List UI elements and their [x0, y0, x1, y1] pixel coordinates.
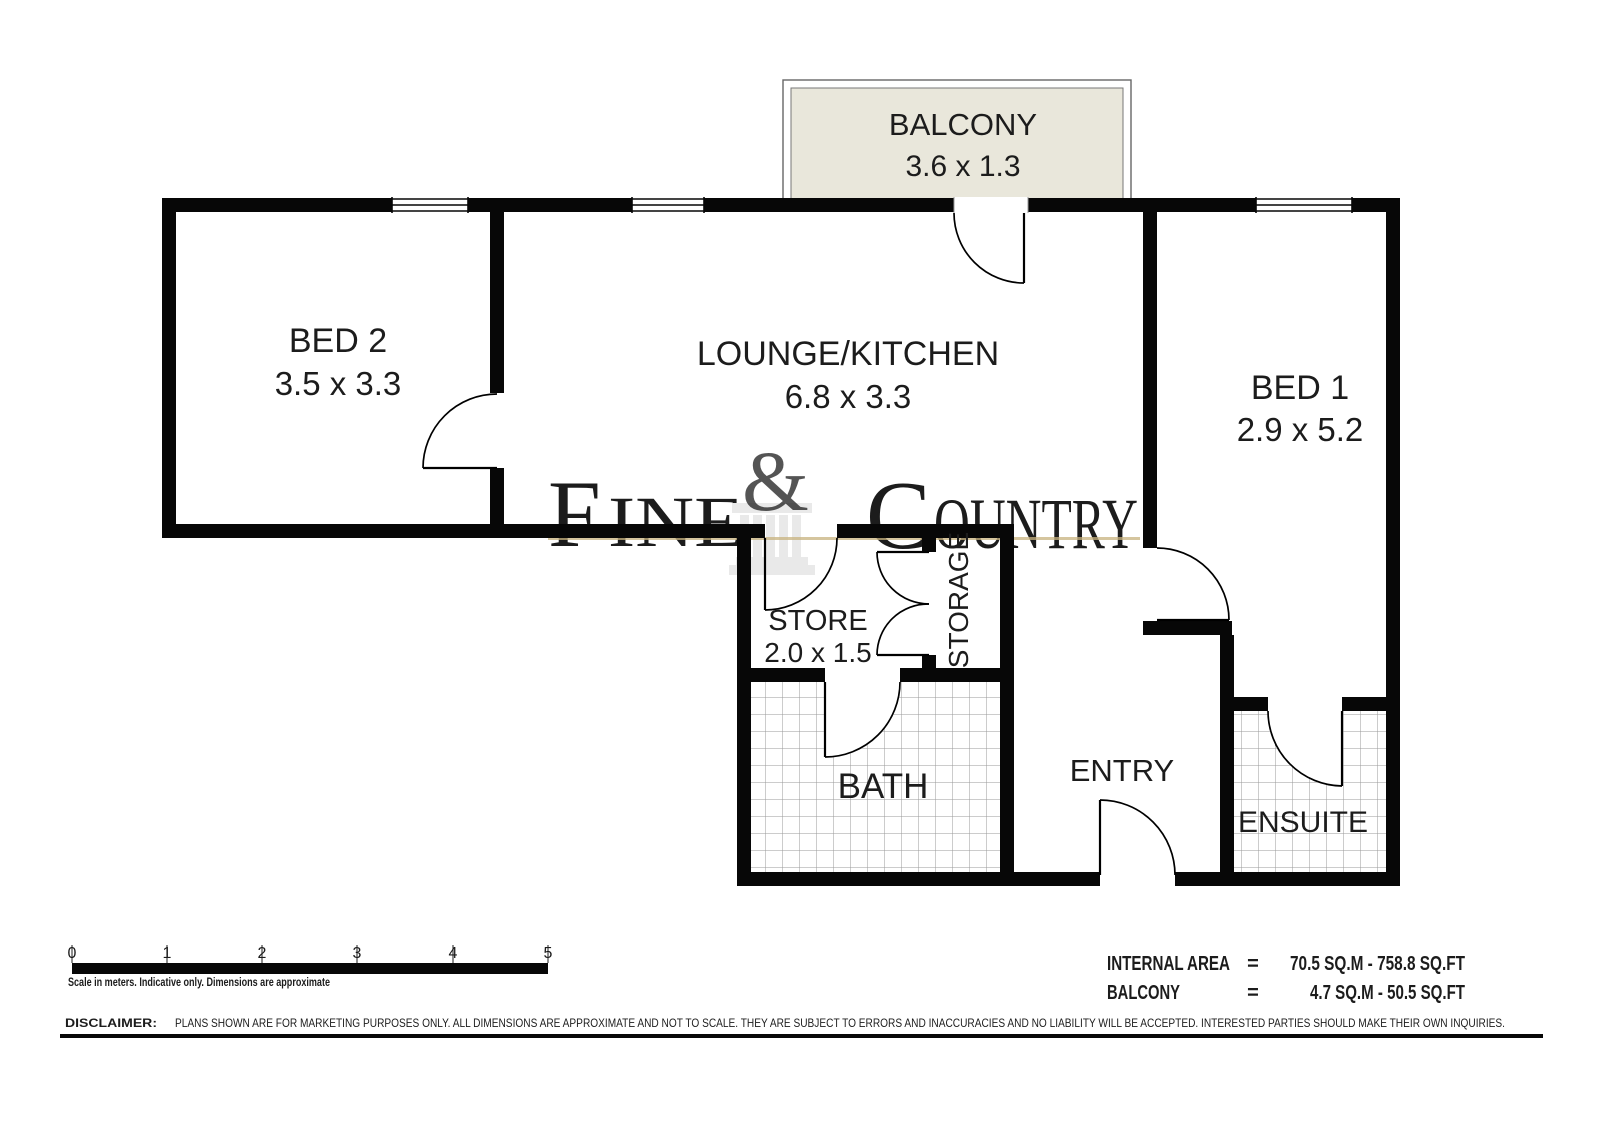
floorplan-svg: BALCONY 3.6 x 1.3 F INE C OUNTRY & — [0, 0, 1600, 1131]
entry-label: ENTRY — [1070, 753, 1175, 788]
balcony-area: BALCONY 3.6 x 1.3 — [783, 80, 1131, 206]
ensuite-label: ENSUITE — [1238, 806, 1368, 839]
store-dims: 2.0 x 1.5 — [764, 637, 871, 668]
balcony-area-eq: = — [1247, 982, 1259, 1004]
bed1-window — [1256, 197, 1352, 213]
scale-caption: Scale in meters. Indicative only. Dimens… — [68, 977, 330, 989]
scale-tick-3: 3 — [353, 945, 362, 962]
bed1-label: BED 1 — [1251, 369, 1349, 407]
scale-tick-1: 1 — [163, 945, 172, 962]
internal-area-label: INTERNAL AREA — [1107, 953, 1230, 975]
scale-bar-rule — [72, 963, 548, 974]
internal-area-value: 70.5 SQ.M - 758.8 SQ.FT — [1290, 953, 1465, 975]
scale-tick-0: 0 — [68, 945, 77, 962]
balcony-dims: 3.6 x 1.3 — [905, 150, 1020, 183]
lounge-dims: 6.8 x 3.3 — [785, 378, 912, 415]
watermark-fine-rest: INE — [608, 482, 744, 562]
bed2-label: BED 2 — [289, 322, 387, 360]
footer-rule — [60, 1034, 1543, 1038]
bath-label: BATH — [838, 767, 929, 806]
store-label: STORE — [768, 605, 867, 637]
balcony-area-label: BALCONY — [1107, 982, 1180, 1004]
scale-tick-2: 2 — [258, 945, 267, 962]
bed1-dims: 2.9 x 5.2 — [1237, 411, 1364, 448]
bed2-window — [392, 197, 468, 213]
disclaimer: DISCLAIMER: PLANS SHOWN ARE FOR MARKETIN… — [60, 1016, 1543, 1038]
balcony-label: BALCONY — [889, 107, 1037, 142]
watermark-fine-initial: F — [548, 461, 601, 567]
scale-tick-5: 5 — [544, 945, 553, 962]
internal-area-eq: = — [1247, 953, 1259, 975]
lounge-window — [632, 197, 704, 213]
scale-tick-4: 4 — [449, 945, 458, 962]
bed2-dims: 3.5 x 3.3 — [275, 365, 402, 402]
balcony-door-opening — [954, 197, 1028, 213]
floorplan-page: BALCONY 3.6 x 1.3 F INE C OUNTRY & — [0, 0, 1600, 1131]
lounge-label: LOUNGE/KITCHEN — [697, 335, 999, 373]
storage-label: STORAGE — [943, 532, 974, 668]
disclaimer-label: DISCLAIMER: — [65, 1016, 157, 1030]
watermark-ampersand: & — [742, 433, 809, 529]
balcony-floor — [791, 88, 1123, 205]
disclaimer-text: PLANS SHOWN ARE FOR MARKETING PURPOSES O… — [175, 1016, 1505, 1030]
balcony-area-value: 4.7 SQ.M - 50.5 SQ.FT — [1310, 982, 1465, 1004]
